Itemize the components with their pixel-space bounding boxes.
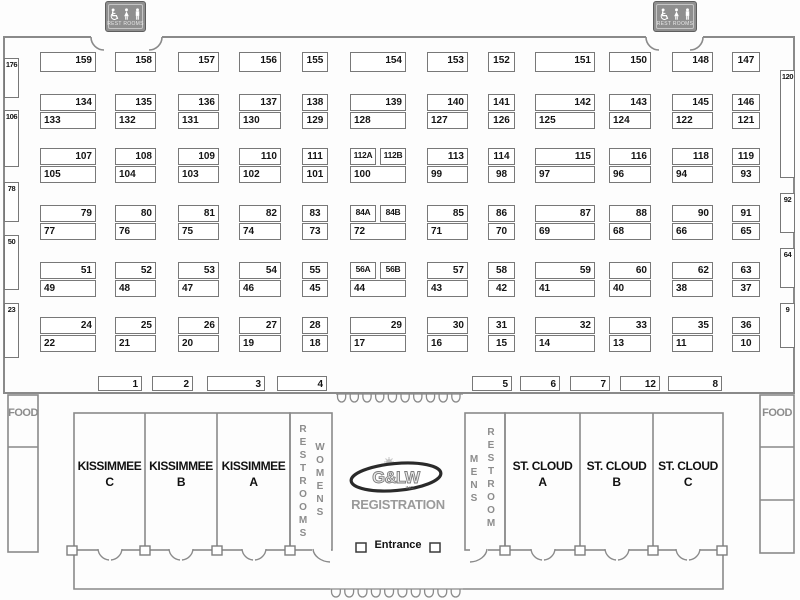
booth-112B: 112B (380, 148, 406, 165)
booth-113: 113 (427, 148, 468, 165)
booth-31: 31 (488, 317, 515, 334)
booth-54: 54 (239, 262, 281, 279)
booth-115: 115 (535, 148, 595, 165)
booth-63: 63 (732, 262, 760, 279)
booth-14: 14 (535, 335, 595, 352)
booth-130: 130 (239, 112, 281, 129)
booth-116: 116 (609, 148, 651, 165)
booth-28: 28 (302, 317, 328, 334)
womens-restrooms-label: RESTROOMS (296, 423, 310, 540)
booth-47: 47 (178, 280, 219, 297)
booth-111: 111 (302, 148, 328, 165)
booth-121: 121 (732, 112, 760, 129)
restroom-sign-label: REST ROOMS (657, 21, 694, 27)
booth-103: 103 (178, 166, 219, 183)
booth-72: 72 (350, 223, 406, 240)
booth-64: 64 (780, 248, 795, 288)
booth-99: 99 (427, 166, 468, 183)
booth-136: 136 (178, 94, 219, 111)
booth-150: 150 (609, 52, 651, 72)
booth-96: 96 (609, 166, 651, 183)
booth-90: 90 (672, 205, 713, 222)
restroom-sign-label: REST ROOMS (107, 21, 144, 27)
registration-label: REGISTRATION (348, 497, 448, 512)
mens-restroom-label: RESTROOM (484, 426, 498, 530)
booth-55: 55 (302, 262, 328, 279)
booth-46: 46 (239, 280, 281, 297)
booth-148: 148 (672, 52, 713, 72)
booth-58: 58 (488, 262, 515, 279)
booth-33: 33 (609, 317, 651, 334)
booth-13: 13 (609, 335, 651, 352)
booth-1: 1 (98, 376, 142, 391)
man-icon (683, 8, 692, 21)
booth-143: 143 (609, 94, 651, 111)
booth-142: 142 (535, 94, 595, 111)
booth-35: 35 (672, 317, 713, 334)
booth-17: 17 (350, 335, 406, 352)
booth-73: 73 (302, 223, 328, 240)
booth-154: 154 (350, 52, 406, 72)
booth-93: 93 (732, 166, 760, 183)
booth-102: 102 (239, 166, 281, 183)
booth-65: 65 (732, 223, 760, 240)
booth-50: 50 (4, 235, 19, 290)
booth-126: 126 (488, 112, 515, 129)
mens-label: MENS (467, 453, 481, 505)
wheelchair-icon (659, 8, 670, 21)
booth-70: 70 (488, 223, 515, 240)
food-label-right: FOOD (761, 407, 793, 419)
booth-94: 94 (672, 166, 713, 183)
booth-3: 3 (207, 376, 265, 391)
wheelchair-icon (109, 8, 120, 21)
woman-icon (122, 8, 131, 21)
booth-60: 60 (609, 262, 651, 279)
booth-59: 59 (535, 262, 595, 279)
booth-156: 156 (239, 52, 281, 72)
booth-152: 152 (488, 52, 515, 72)
booth-21: 21 (115, 335, 156, 352)
booth-29: 29 (350, 317, 406, 334)
logo-sub-text: INC. (406, 485, 415, 490)
booth-38: 38 (672, 280, 713, 297)
booth-71: 71 (427, 223, 468, 240)
booth-19: 19 (239, 335, 281, 352)
booth-176: 176 (4, 58, 19, 98)
booth-30: 30 (427, 317, 468, 334)
booth-87: 87 (535, 205, 595, 222)
booth-131: 131 (178, 112, 219, 129)
booth-23: 23 (4, 303, 19, 358)
booth-15: 15 (488, 335, 515, 352)
booth-100: 100 (350, 166, 406, 183)
booth-48: 48 (115, 280, 156, 297)
booth-146: 146 (732, 94, 760, 111)
booth-8: 8 (668, 376, 722, 391)
booth-51: 51 (40, 262, 96, 279)
booth-32: 32 (535, 317, 595, 334)
floor-plan: 1591581571561551541531521511501481471341… (0, 0, 800, 600)
room-kissimmee-a: KISSIMMEE A (217, 458, 290, 490)
womens-label: WOMENS (313, 441, 327, 519)
booth-66: 66 (672, 223, 713, 240)
booth-120: 120 (780, 70, 795, 178)
booth-44: 44 (350, 280, 406, 297)
booth-125: 125 (535, 112, 595, 129)
restroom-sign-right: REST ROOMS (653, 1, 697, 32)
room-kissimmee-b: KISSIMMEE B (145, 458, 217, 490)
booth-108: 108 (115, 148, 156, 165)
booth-43: 43 (427, 280, 468, 297)
booth-69: 69 (535, 223, 595, 240)
booth-159: 159 (40, 52, 96, 72)
booth-78: 78 (4, 182, 19, 222)
booth-53: 53 (178, 262, 219, 279)
booth-92: 92 (780, 193, 795, 233)
room-kissimmee-c: KISSIMMEE C (74, 458, 145, 490)
booth-137: 137 (239, 94, 281, 111)
booth-57: 57 (427, 262, 468, 279)
booth-74: 74 (239, 223, 281, 240)
booth-12: 12 (620, 376, 660, 391)
glw-logo: G&LW INC. (348, 456, 448, 498)
booth-56A: 56A (350, 262, 376, 279)
room-stcloud-c: ST. CLOUD C (653, 458, 723, 490)
woman-icon (672, 8, 681, 21)
booth-24: 24 (40, 317, 96, 334)
booth-110: 110 (239, 148, 281, 165)
man-icon (133, 8, 142, 21)
booth-16: 16 (427, 335, 468, 352)
booth-98: 98 (488, 166, 515, 183)
booth-128: 128 (350, 112, 406, 129)
booth-10: 10 (732, 335, 760, 352)
booth-42: 42 (488, 280, 515, 297)
booth-18: 18 (302, 335, 328, 352)
booth-80: 80 (115, 205, 156, 222)
booth-132: 132 (115, 112, 156, 129)
booth-56B: 56B (380, 262, 406, 279)
booth-62: 62 (672, 262, 713, 279)
booth-25: 25 (115, 317, 156, 334)
booth-49: 49 (40, 280, 96, 297)
booth-124: 124 (609, 112, 651, 129)
booth-5: 5 (472, 376, 512, 391)
booth-40: 40 (609, 280, 651, 297)
booth-84B: 84B (380, 205, 406, 222)
booth-76: 76 (115, 223, 156, 240)
booth-139: 139 (350, 94, 406, 111)
booth-86: 86 (488, 205, 515, 222)
booth-122: 122 (672, 112, 713, 129)
booth-133: 133 (40, 112, 96, 129)
booth-27: 27 (239, 317, 281, 334)
booth-68: 68 (609, 223, 651, 240)
booth-107: 107 (40, 148, 96, 165)
booth-37: 37 (732, 280, 760, 297)
booth-151: 151 (535, 52, 595, 72)
booth-135: 135 (115, 94, 156, 111)
booth-106: 106 (4, 110, 19, 167)
booth-153: 153 (427, 52, 468, 72)
booth-129: 129 (302, 112, 328, 129)
entrance-label: Entrance (366, 539, 430, 551)
booth-118: 118 (672, 148, 713, 165)
booth-141: 141 (488, 94, 515, 111)
booth-109: 109 (178, 148, 219, 165)
booth-41: 41 (535, 280, 595, 297)
booth-97: 97 (535, 166, 595, 183)
booth-82: 82 (239, 205, 281, 222)
booth-52: 52 (115, 262, 156, 279)
booth-6: 6 (520, 376, 560, 391)
booth-81: 81 (178, 205, 219, 222)
booth-9: 9 (780, 303, 795, 348)
room-stcloud-b: ST. CLOUD B (580, 458, 653, 490)
booth-105: 105 (40, 166, 96, 183)
booth-138: 138 (302, 94, 328, 111)
booth-157: 157 (178, 52, 219, 72)
booth-101: 101 (302, 166, 328, 183)
booth-91: 91 (732, 205, 760, 222)
booth-84A: 84A (350, 205, 376, 222)
booth-75: 75 (178, 223, 219, 240)
booth-158: 158 (115, 52, 156, 72)
booth-147: 147 (732, 52, 760, 72)
booth-36: 36 (732, 317, 760, 334)
booth-119: 119 (732, 148, 760, 165)
booth-45: 45 (302, 280, 328, 297)
booth-20: 20 (178, 335, 219, 352)
food-label-left: FOOD (8, 407, 38, 419)
booth-79: 79 (40, 205, 96, 222)
booth-22: 22 (40, 335, 96, 352)
booth-83: 83 (302, 205, 328, 222)
booth-4: 4 (277, 376, 327, 391)
booth-2: 2 (152, 376, 193, 391)
booth-104: 104 (115, 166, 156, 183)
restroom-sign-left: REST ROOMS (105, 1, 146, 32)
booth-127: 127 (427, 112, 468, 129)
booth-140: 140 (427, 94, 468, 111)
booth-145: 145 (672, 94, 713, 111)
booth-114: 114 (488, 148, 515, 165)
booth-26: 26 (178, 317, 219, 334)
booth-88: 88 (609, 205, 651, 222)
booth-77: 77 (40, 223, 96, 240)
booth-155: 155 (302, 52, 328, 72)
booth-112A: 112A (350, 148, 376, 165)
booth-85: 85 (427, 205, 468, 222)
booth-134: 134 (40, 94, 96, 111)
booth-11: 11 (672, 335, 713, 352)
booth-7: 7 (570, 376, 610, 391)
room-stcloud-a: ST. CLOUD A (505, 458, 580, 490)
